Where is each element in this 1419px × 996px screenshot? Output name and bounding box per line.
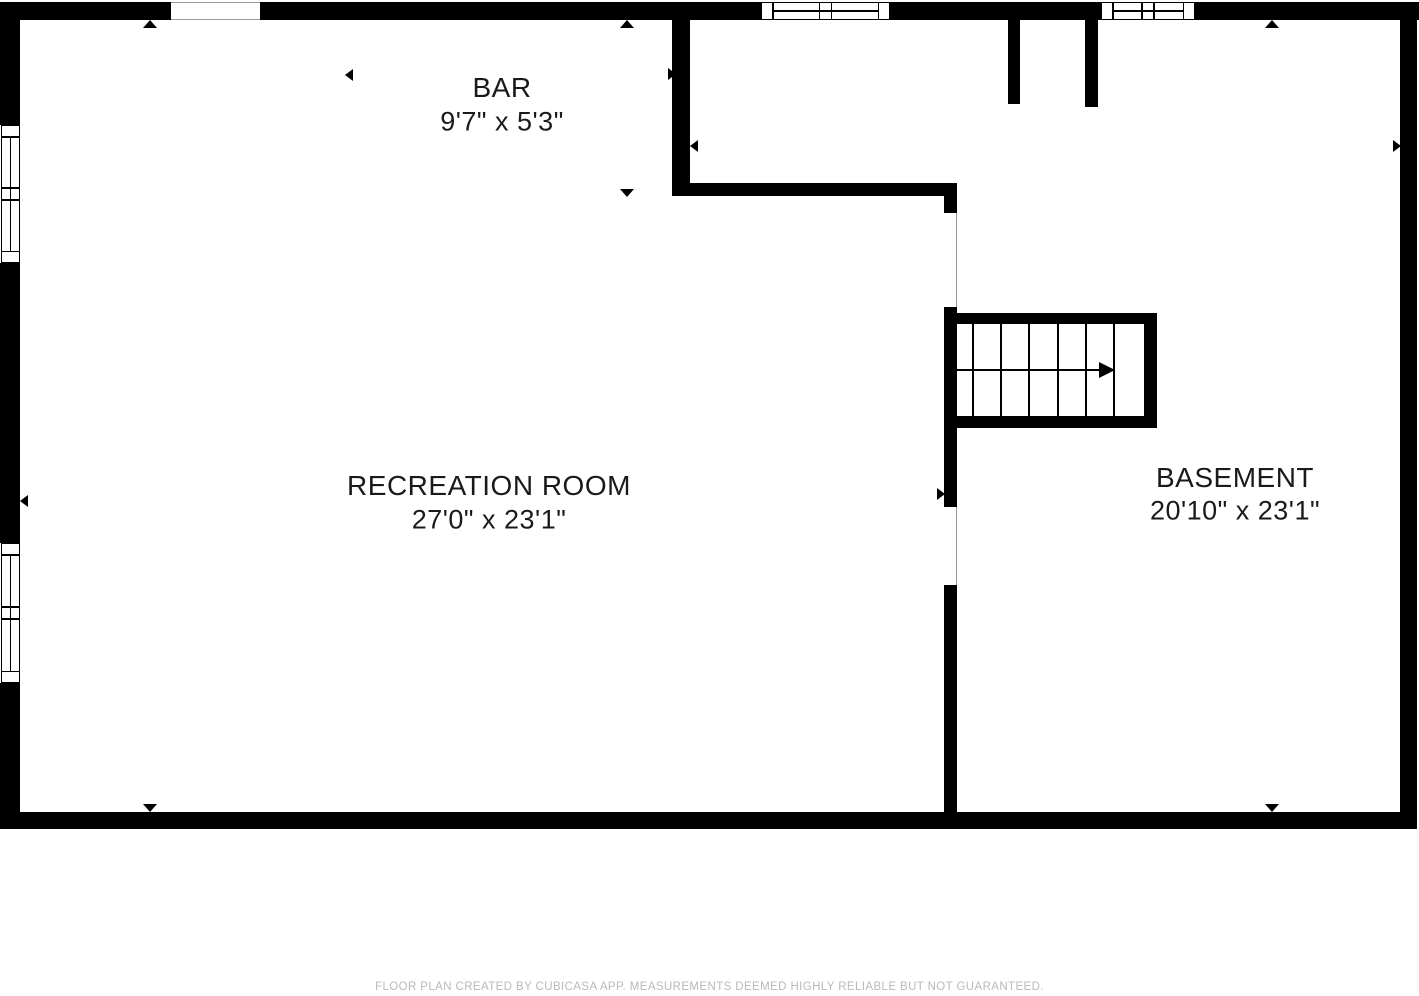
window-line [831,3,833,19]
window-line [1141,3,1143,19]
door-opening-divider-doorway-lower [944,507,957,585]
dimension-arrow-right-icon [1393,140,1401,152]
window-line [2,251,19,253]
dimension-arrow-right-icon [668,68,676,80]
window-line [878,3,880,19]
dimension-arrow-down-icon [1265,804,1279,812]
wall-bar-right-wall [672,20,690,196]
wall-right-wall [1400,2,1417,829]
room-label-basement: BASEMENT [1156,462,1314,494]
wall-stair-top-bar [944,313,1157,324]
window-line [1112,3,1114,19]
wall-bottom-wall [0,812,1415,829]
window-line [10,554,12,672]
wall-stair-right-bar [1144,313,1157,428]
dimension-arrow-down-icon [143,804,157,812]
window-line [2,671,19,673]
wall-entry-stub-right [1085,18,1098,107]
window-line [1153,3,1155,19]
dimension-arrow-up-icon [620,20,634,28]
window-line [1183,3,1185,19]
wall-divider-seg-lower [944,585,957,829]
door-opening-divider-doorway-upper [944,213,957,307]
wall-top-wall-a [0,2,171,20]
wall-top-wall-d [1195,2,1419,20]
window-line [2,199,19,201]
window-line [819,3,821,19]
window-line [2,136,19,138]
wall-left-wall-lower [0,683,20,829]
floor-plan: BAR9'7" x 5'3"RECREATION ROOM27'0" x 23'… [0,0,1419,996]
room-label-bar: BAR [472,72,531,104]
window-line [10,136,12,252]
room-dimensions-bar: 9'7" x 5'3" [440,107,564,138]
dimension-arrow-up-icon [143,20,157,28]
dimension-arrow-left-icon [20,495,28,507]
dimension-arrow-right-icon [937,488,945,500]
wall-bar-bottom-wall [672,183,957,196]
window-top-window-2 [1101,2,1195,20]
window-line [2,554,19,556]
stairs-direction-line [957,369,1100,371]
wall-divider-tab [944,183,957,213]
window-line [772,10,879,12]
wall-divider-seg-below-stairs [944,428,957,507]
door-opening-top-wall-opening [171,2,260,20]
window-line [2,187,19,189]
dimension-arrow-up-icon [1265,20,1279,28]
room-label-recreation-room: RECREATION ROOM [347,470,631,502]
window-left-window-2 [1,543,20,683]
window-top-window-1 [761,2,890,20]
window-line [2,618,19,620]
wall-left-wall-mid [0,263,20,543]
footer-disclaimer: FLOOR PLAN CREATED BY CUBICASA APP. MEAS… [0,981,1419,993]
dimension-arrow-left-icon [345,69,353,81]
window-line [2,606,19,608]
window-line [772,3,774,19]
stairs-direction-arrow-icon [1099,362,1115,378]
dimension-arrow-left-icon [690,140,698,152]
room-dimensions-basement: 20'10" x 23'1" [1150,496,1320,527]
wall-stair-bottom-bar [944,416,1157,428]
wall-top-wall-c [890,2,1101,20]
wall-top-wall-b [260,2,761,20]
window-line [1112,10,1184,12]
wall-left-wall-upper [0,2,20,125]
dimension-arrow-down-icon [620,189,634,197]
wall-entry-stub-left [1008,18,1020,104]
room-dimensions-recreation-room: 27'0" x 23'1" [412,505,567,536]
wall-divider-seg-stairs [944,307,957,428]
window-left-window-1 [1,125,20,263]
